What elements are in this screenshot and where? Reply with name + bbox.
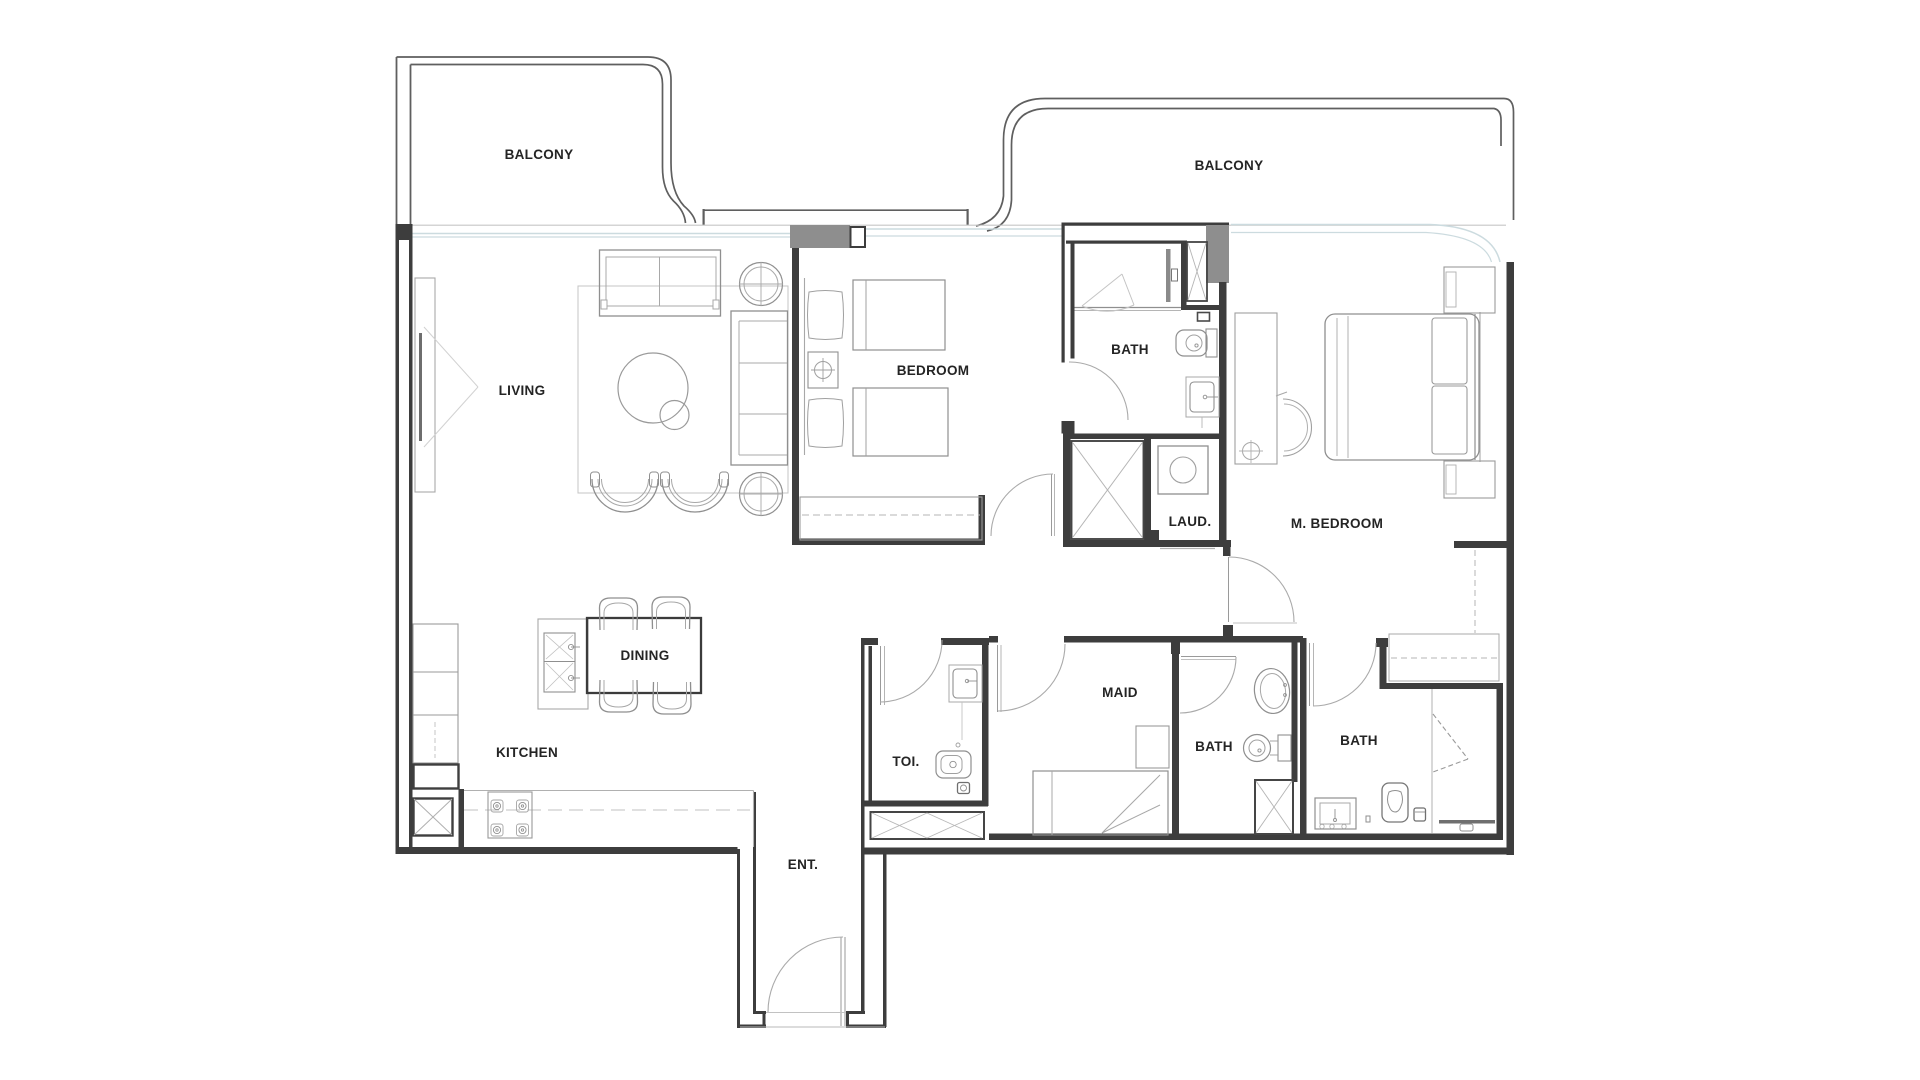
svg-text:BATH: BATH bbox=[1195, 739, 1233, 754]
svg-text:BEDROOM: BEDROOM bbox=[897, 363, 970, 378]
svg-text:BALCONY: BALCONY bbox=[1195, 158, 1264, 173]
svg-text:MAID: MAID bbox=[1102, 685, 1138, 700]
svg-text:LAUD.: LAUD. bbox=[1169, 514, 1212, 529]
svg-text:DINING: DINING bbox=[620, 648, 669, 663]
svg-text:M. BEDROOM: M. BEDROOM bbox=[1291, 516, 1383, 531]
svg-text:KITCHEN: KITCHEN bbox=[496, 745, 558, 760]
svg-text:BALCONY: BALCONY bbox=[505, 147, 574, 162]
svg-text:BATH: BATH bbox=[1340, 733, 1378, 748]
svg-text:LIVING: LIVING bbox=[499, 383, 546, 398]
svg-text:TOI.: TOI. bbox=[892, 754, 919, 769]
svg-text:BATH: BATH bbox=[1111, 342, 1149, 357]
svg-text:ENT.: ENT. bbox=[788, 857, 818, 872]
